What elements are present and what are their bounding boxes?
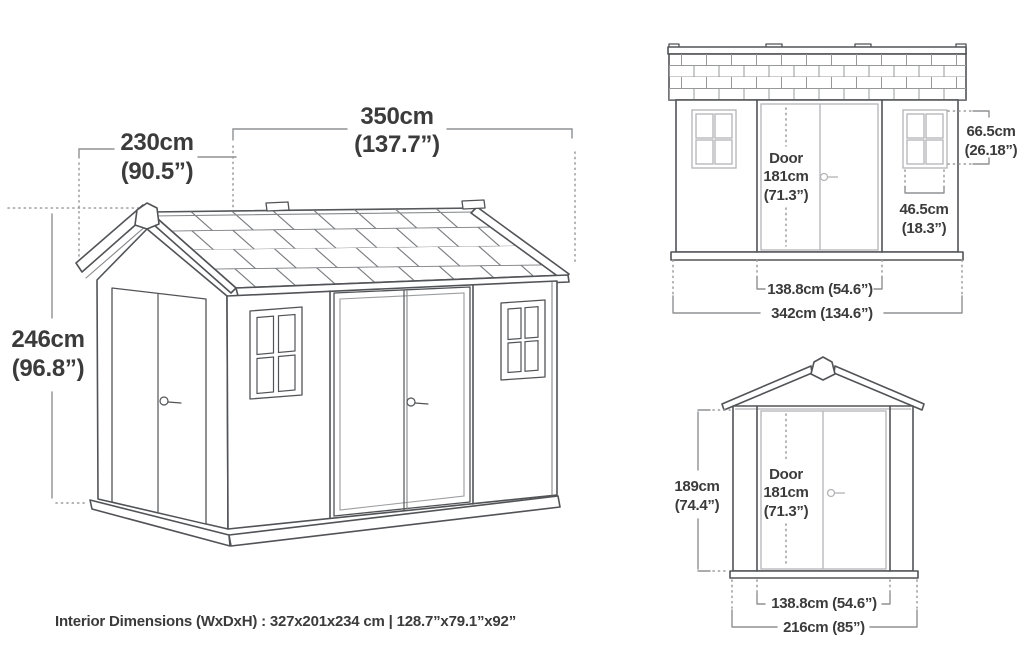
dim-total-width-label: 216cm (85”) — [783, 619, 865, 636]
door-height-cm-label: 181cm — [763, 484, 808, 501]
dim-door-width-label: 138.8cm (54.6”) — [767, 281, 873, 298]
side-door — [112, 288, 206, 524]
front-double-door — [330, 285, 473, 518]
brick-pattern — [669, 54, 966, 100]
roof-peak-cap — [811, 357, 835, 380]
dim-height: 189cm (74.4”) — [674, 410, 730, 571]
roof — [722, 357, 924, 410]
ridge-cap — [462, 200, 485, 209]
door-label: Door — [769, 150, 803, 167]
door-label: Door — [769, 466, 803, 483]
dim-height-in-label: (74.4”) — [675, 497, 720, 514]
roof — [668, 44, 966, 100]
dim-window-width-cm-label: 46.5cm — [899, 201, 948, 218]
dim-window-width-in-label: (18.3”) — [902, 220, 947, 237]
dim-total-width-label: 342cm (134.6”) — [771, 305, 873, 322]
shed-perspective-drawing: 246cm (96.8”) 230cm (90.5”) 350cm (137.7… — [0, 95, 615, 560]
door-height-in-label: (71.3”) — [764, 503, 809, 520]
shed-front-elevation-drawing: Door 181cm (71.3”) 189cm (74.4”) 138.8cm… — [660, 348, 1030, 650]
dim-height-cm-label: 246cm — [11, 326, 84, 353]
front-window-right — [501, 300, 545, 380]
dim-depth-in-label: (90.5”) — [121, 158, 194, 185]
base — [730, 571, 918, 578]
roof-peak-cap — [135, 203, 159, 229]
door-height-cm-label: 181cm — [763, 168, 808, 185]
shed-dimensions-diagram: 246cm (96.8”) 230cm (90.5”) 350cm (137.7… — [0, 0, 1030, 650]
dim-door-width: 138.8cm (54.6”) — [757, 260, 882, 298]
dim-window-height-in-label: (26.18”) — [965, 142, 1018, 159]
dim-window-height-cm-label: 66.5cm — [966, 123, 1015, 140]
base — [671, 252, 963, 260]
dim-door-width-label: 138.8cm (54.6”) — [771, 595, 877, 612]
ridge-cap — [266, 202, 289, 211]
dim-width-cm-label: 350cm — [360, 103, 433, 130]
shed-side-elevation-drawing: Door 181cm (71.3”) 66.5cm (26.18”) — [660, 35, 1030, 335]
dim-door-width: 138.8cm (54.6”) — [757, 580, 890, 612]
dim-height-in-label: (96.8”) — [12, 355, 85, 382]
door-height-in-label: (71.3”) — [764, 187, 809, 204]
dim-height-cm-label: 189cm — [674, 478, 719, 495]
interior-dimensions-note: Interior Dimensions (WxDxH) : 327x201x23… — [55, 613, 516, 630]
dim-width-in-label: (137.7”) — [354, 131, 440, 158]
dim-depth-cm-label: 230cm — [120, 129, 193, 156]
front-window-left — [250, 307, 302, 399]
